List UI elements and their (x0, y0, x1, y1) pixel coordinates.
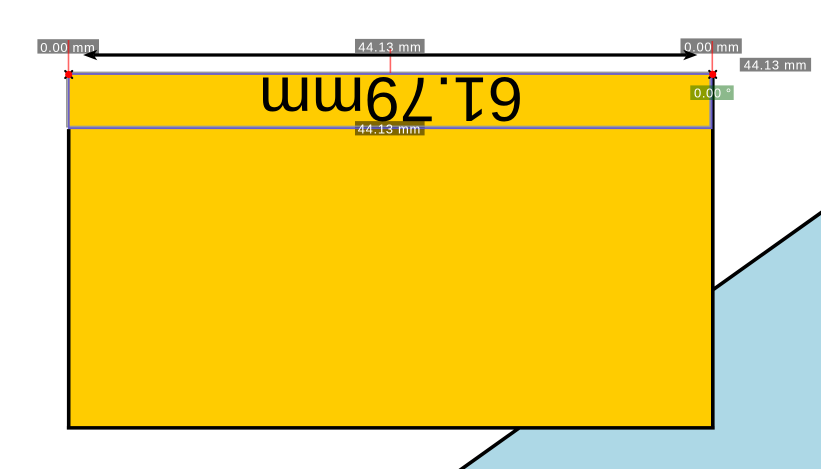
svg-text:0.00 °: 0.00 ° (694, 85, 732, 100)
svg-text:44.13 mm: 44.13 mm (744, 57, 807, 72)
svg-text:44.13 mm: 44.13 mm (358, 121, 421, 136)
